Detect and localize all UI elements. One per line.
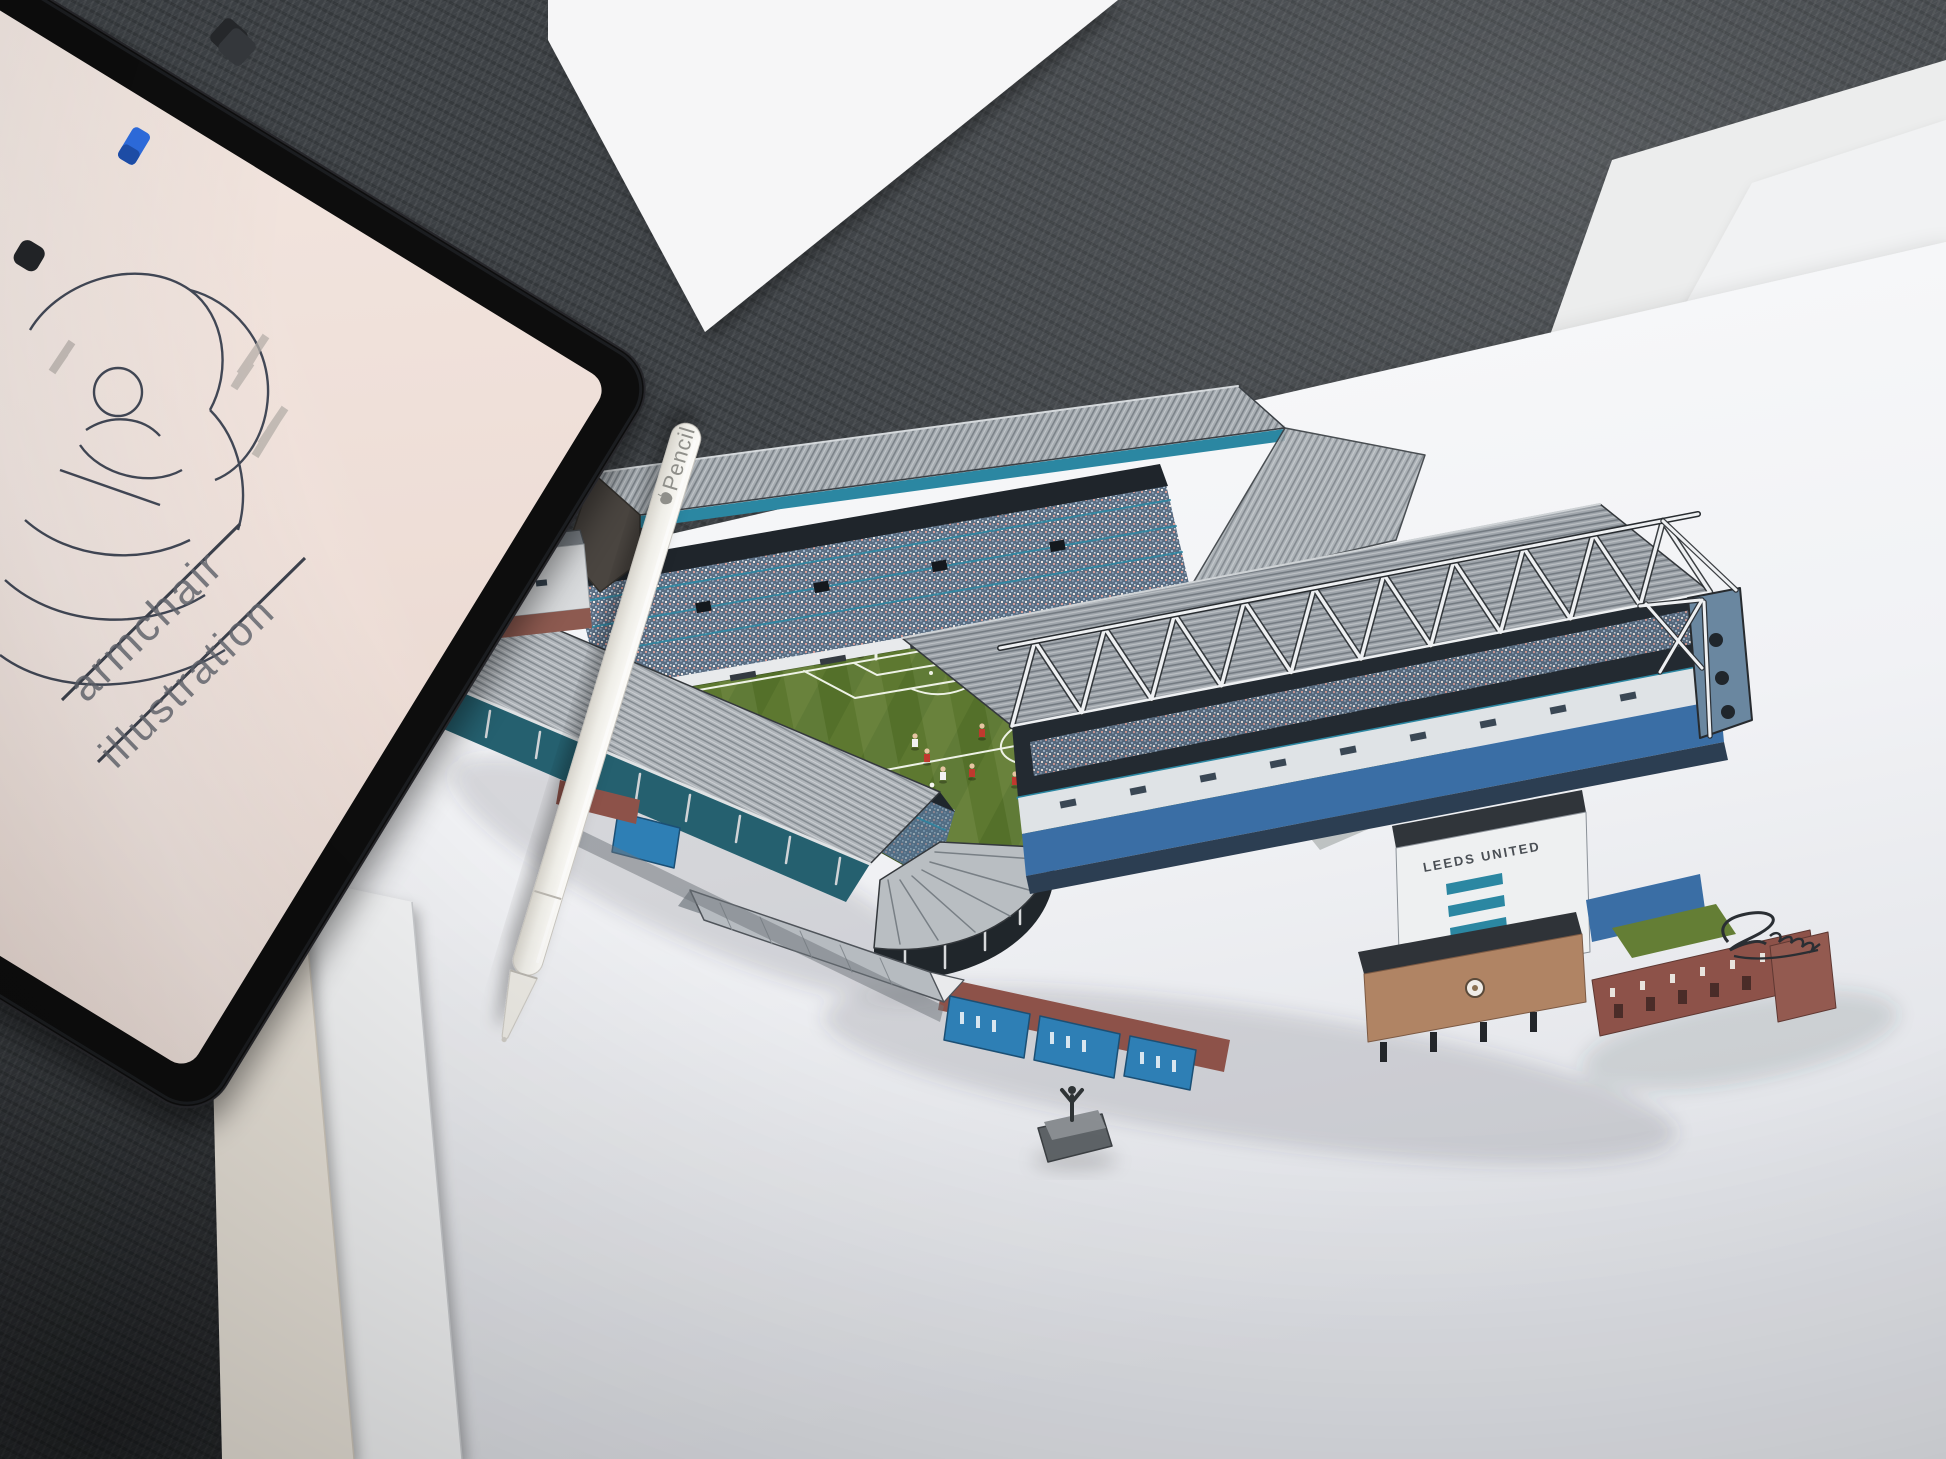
photo-scene: LEEDS UNITED (0, 0, 1946, 1459)
vignette-overlay (0, 0, 1946, 1459)
